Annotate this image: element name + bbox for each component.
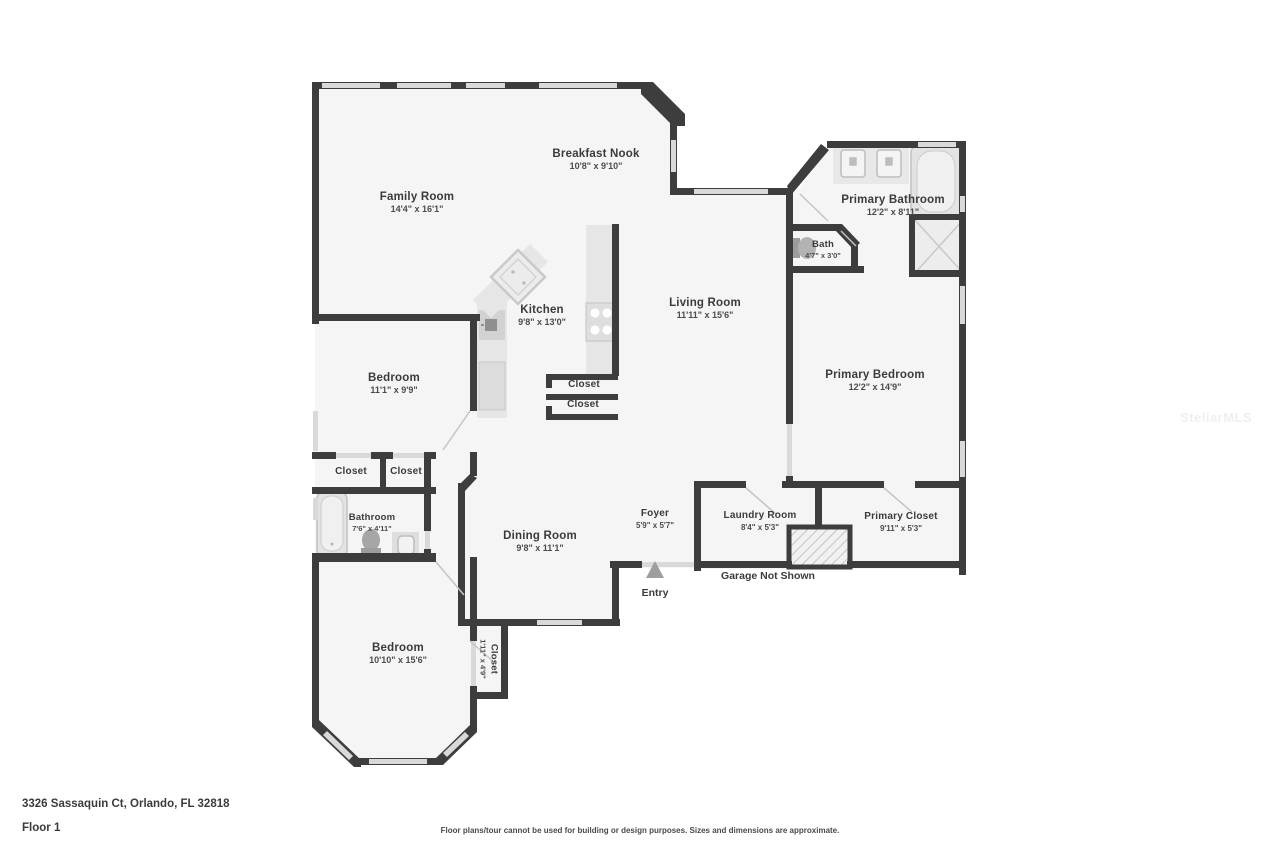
floor-plan-page: Family Room 14'4" x 16'1" Breakfast Nook…	[0, 0, 1280, 852]
shower-icon	[915, 220, 963, 273]
toilet-icon	[361, 529, 381, 557]
room-fills	[315, 85, 966, 762]
disclaimer-text: Floor plans/tour cannot be used for buil…	[0, 826, 1280, 835]
floor-plan-canvas	[0, 0, 1280, 852]
bathtub-icon	[317, 492, 347, 557]
toilet-icon	[791, 237, 816, 259]
bathtub-icon	[911, 145, 961, 218]
address-text: 3326 Sassaquin Ct, Orlando, FL 32818	[22, 798, 230, 810]
bath-fixtures	[791, 237, 816, 259]
watermark: StellarMLS	[1180, 410, 1252, 425]
water-heater-icon	[789, 527, 850, 567]
